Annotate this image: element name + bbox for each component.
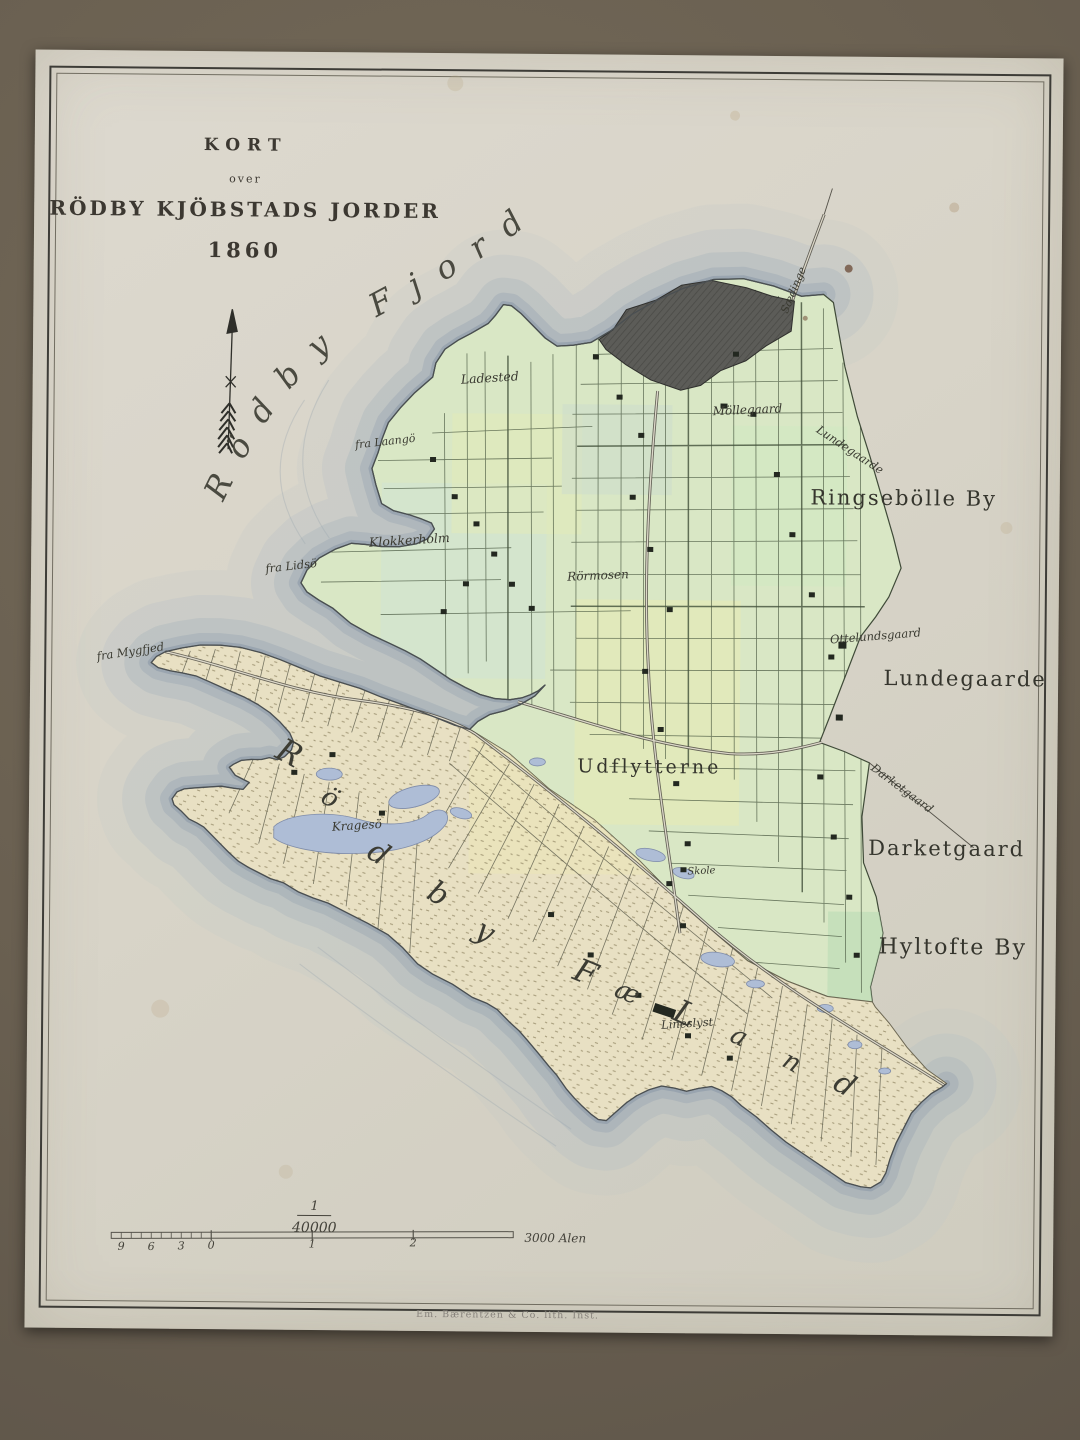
scale-tick-0: 0	[208, 1239, 215, 1252]
lithographer-imprint: Em. Bærentzen & Co. lith. Inst.	[416, 1309, 599, 1322]
scale-unit-label: 3000 Alen	[524, 1231, 586, 1246]
peninsula-spread-letter: d	[361, 834, 396, 874]
peninsula-spread-letter: a	[725, 1020, 752, 1054]
scale-fraction: 1 40000	[292, 1195, 337, 1236]
peninsula-spread-letter: R	[270, 730, 309, 775]
scale-tick-1: 1	[309, 1237, 316, 1250]
scale-fraction-bar	[297, 1215, 331, 1216]
scale-tick-3: 3	[178, 1239, 185, 1252]
peninsula-spread-letter: ö	[316, 781, 345, 815]
scale-fraction-numerator: 1	[310, 1199, 318, 1214]
scale-fraction-denominator: 40000	[292, 1220, 337, 1236]
photo-of-framed-map: { "title": { "kicker": "KORT", "over": "…	[0, 0, 1080, 1440]
peninsula-spread-letter: y	[469, 912, 501, 951]
map-sheet: Rödby Fjord KORT over RÖDBY KJÖBSTADS JO…	[24, 50, 1063, 1337]
peninsula-spread-label: RödbyFæLand	[24, 50, 1063, 1337]
scale-tick-6: 6	[148, 1240, 155, 1253]
peninsula-spread-letter: F	[568, 951, 603, 995]
peninsula-spread-letter: n	[777, 1045, 806, 1079]
peninsula-spread-letter: b	[421, 874, 455, 914]
scale-tick-2: 2	[410, 1236, 417, 1249]
peninsula-spread-letter: L	[668, 992, 703, 1035]
peninsula-spread-letter: æ	[610, 974, 644, 1011]
scale-tick-9: 9	[118, 1240, 125, 1253]
peninsula-spread-letter: d	[827, 1065, 861, 1105]
